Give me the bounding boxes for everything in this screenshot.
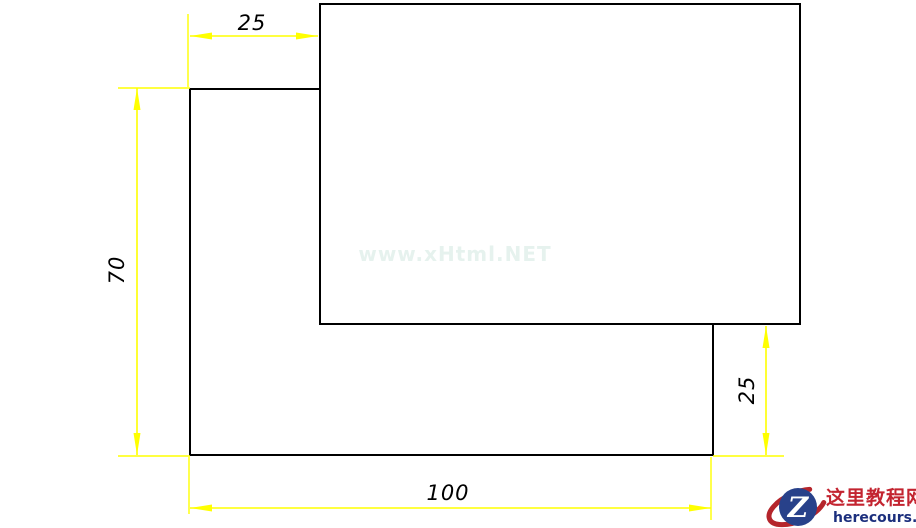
arrow-left-down-icon xyxy=(134,433,141,455)
arrow-bottom-left-icon xyxy=(190,505,212,512)
arrow-right-up-icon xyxy=(763,326,770,348)
dim-label-top-width: 25 xyxy=(238,11,267,35)
dim-label-right-height: 25 xyxy=(735,376,759,405)
cad-canvas: 25 70 25 100 www.xHtml.NET Z 这里教程网 herec… xyxy=(0,0,916,528)
arrow-bottom-right-icon xyxy=(689,505,711,512)
upper-rectangle-outline xyxy=(320,4,800,324)
arrow-top-left-icon xyxy=(190,33,212,40)
logo-site-name: 这里教程网 xyxy=(826,486,916,509)
dim-label-bottom-width: 100 xyxy=(426,481,469,505)
watermark-text: www.xHtml.NET xyxy=(358,242,551,266)
arrow-right-down-icon xyxy=(763,433,770,455)
dim-label-left-height: 70 xyxy=(105,256,129,285)
site-logo: Z 这里教程网 herecours.com xyxy=(764,482,916,528)
cad-drawing-svg: 25 70 25 100 www.xHtml.NET Z 这里教程网 herec… xyxy=(0,0,916,528)
logo-letter-icon: Z xyxy=(787,491,810,524)
arrow-top-right-icon xyxy=(296,33,318,40)
logo-site-url: herecours.com xyxy=(833,510,916,526)
arrow-left-up-icon xyxy=(134,88,141,110)
